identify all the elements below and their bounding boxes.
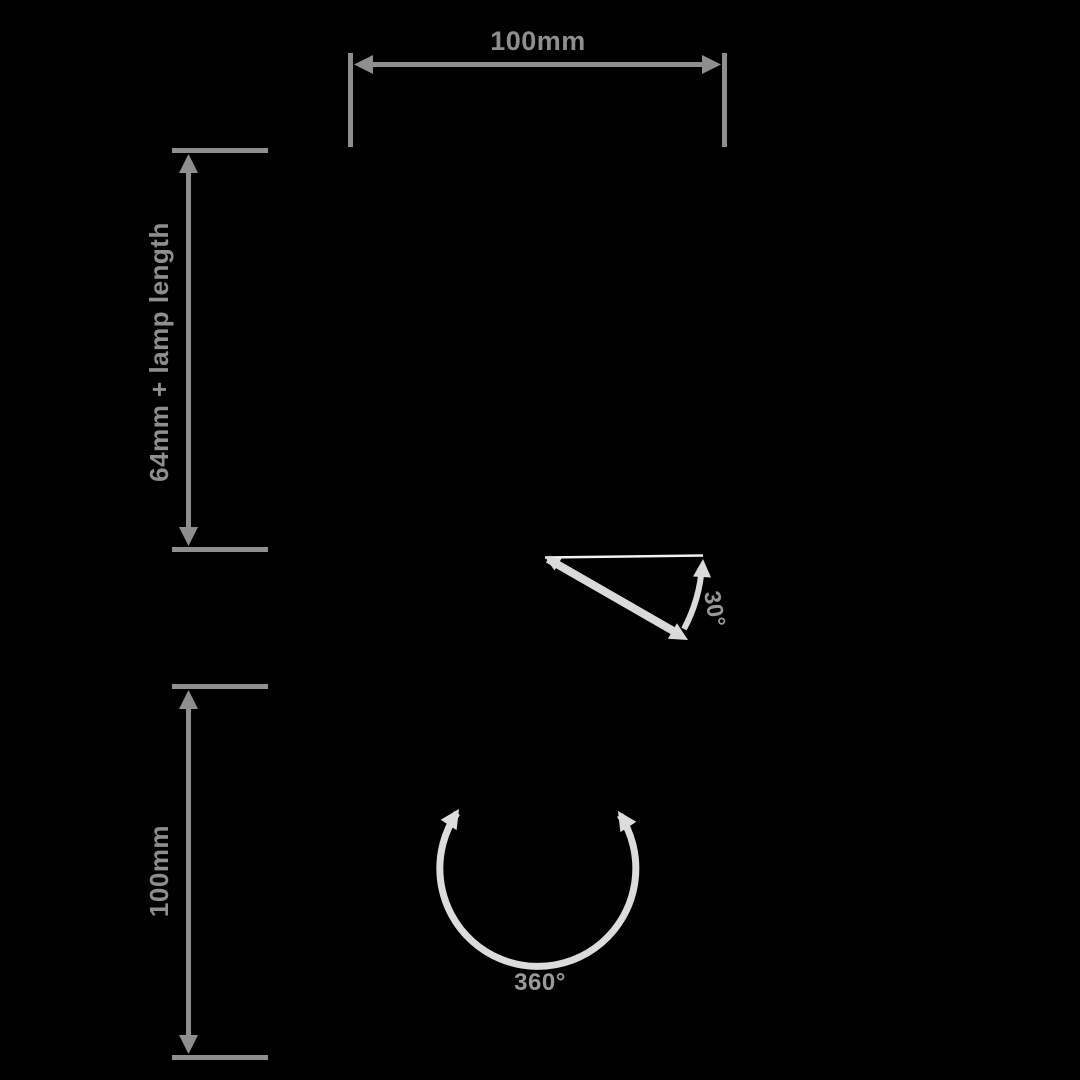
width-dimension-tick-right (722, 53, 727, 147)
lamp-dimension-diagram: 100mm 64mm + lamp length (0, 0, 1080, 1080)
lower-height-dimension: 100mm (144, 684, 268, 1060)
drop-height-tick-top (172, 148, 268, 153)
arrow-up-icon (179, 154, 198, 173)
arc-arrow-up-icon (693, 559, 712, 578)
arc-arrow-left-icon (441, 804, 467, 830)
width-dimension-label: 100mm (490, 26, 586, 56)
width-dimension-tick-left (348, 53, 353, 147)
drop-height-tick-bottom (172, 547, 268, 552)
lower-height-dimension-label: 100mm (144, 825, 174, 917)
tilt-angle-indicator: 30° (542, 551, 731, 648)
tilt-reference-line (545, 556, 703, 558)
lower-height-tick-top (172, 684, 268, 689)
rotation-angle-label: 360° (514, 969, 566, 996)
arrow-left-icon (354, 55, 373, 74)
width-dimension: 100mm (348, 26, 727, 147)
rotation-angle-indicator: 360° (440, 804, 636, 996)
arc-arrow-right-icon (610, 806, 636, 832)
arrow-up-icon (179, 690, 198, 709)
tilt-diagonal-line (548, 559, 676, 633)
drop-height-dimension: 64mm + lamp length (144, 148, 268, 552)
arrow-right-icon (702, 55, 721, 74)
arrow-down-icon (179, 1035, 198, 1054)
arrow-down-icon (179, 527, 198, 546)
dimension-diagram-canvas: 100mm 64mm + lamp length (0, 0, 1080, 1080)
rotation-arc (440, 813, 636, 966)
tilt-angle-label: 30° (699, 589, 731, 629)
lower-height-tick-bottom (172, 1055, 268, 1060)
drop-height-dimension-label: 64mm + lamp length (144, 222, 174, 482)
